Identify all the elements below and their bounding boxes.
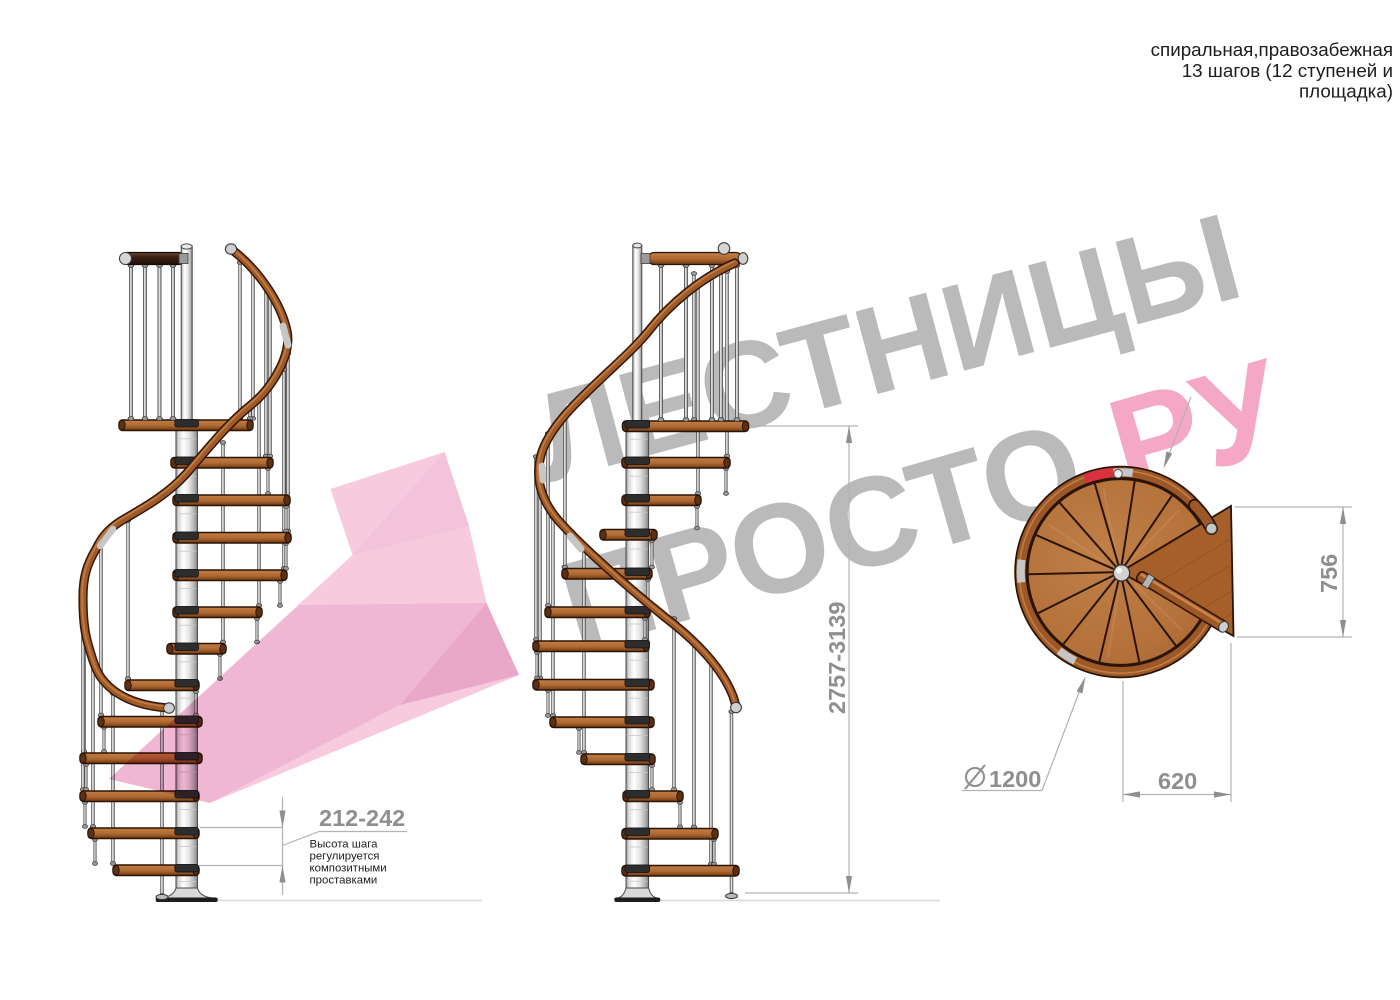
svg-text:площадка): площадка): [1299, 81, 1393, 102]
svg-text:620: 620: [1158, 768, 1197, 794]
svg-text:спиральная,правозабежная: спиральная,правозабежная: [1151, 39, 1393, 60]
svg-text:регулируется: регулируется: [310, 851, 380, 863]
svg-text:2757-3139: 2757-3139: [824, 602, 850, 714]
svg-text:композитными: композитными: [310, 863, 387, 875]
svg-text:13 шагов (12 ступеней и: 13 шагов (12 ступеней и: [1182, 60, 1393, 81]
svg-text:проставками: проставками: [310, 875, 378, 887]
svg-text:1200: 1200: [989, 766, 1041, 792]
svg-text:756: 756: [1316, 554, 1342, 593]
svg-text:212-242: 212-242: [319, 805, 405, 831]
svg-text:Высота шага: Высота шага: [310, 839, 379, 851]
